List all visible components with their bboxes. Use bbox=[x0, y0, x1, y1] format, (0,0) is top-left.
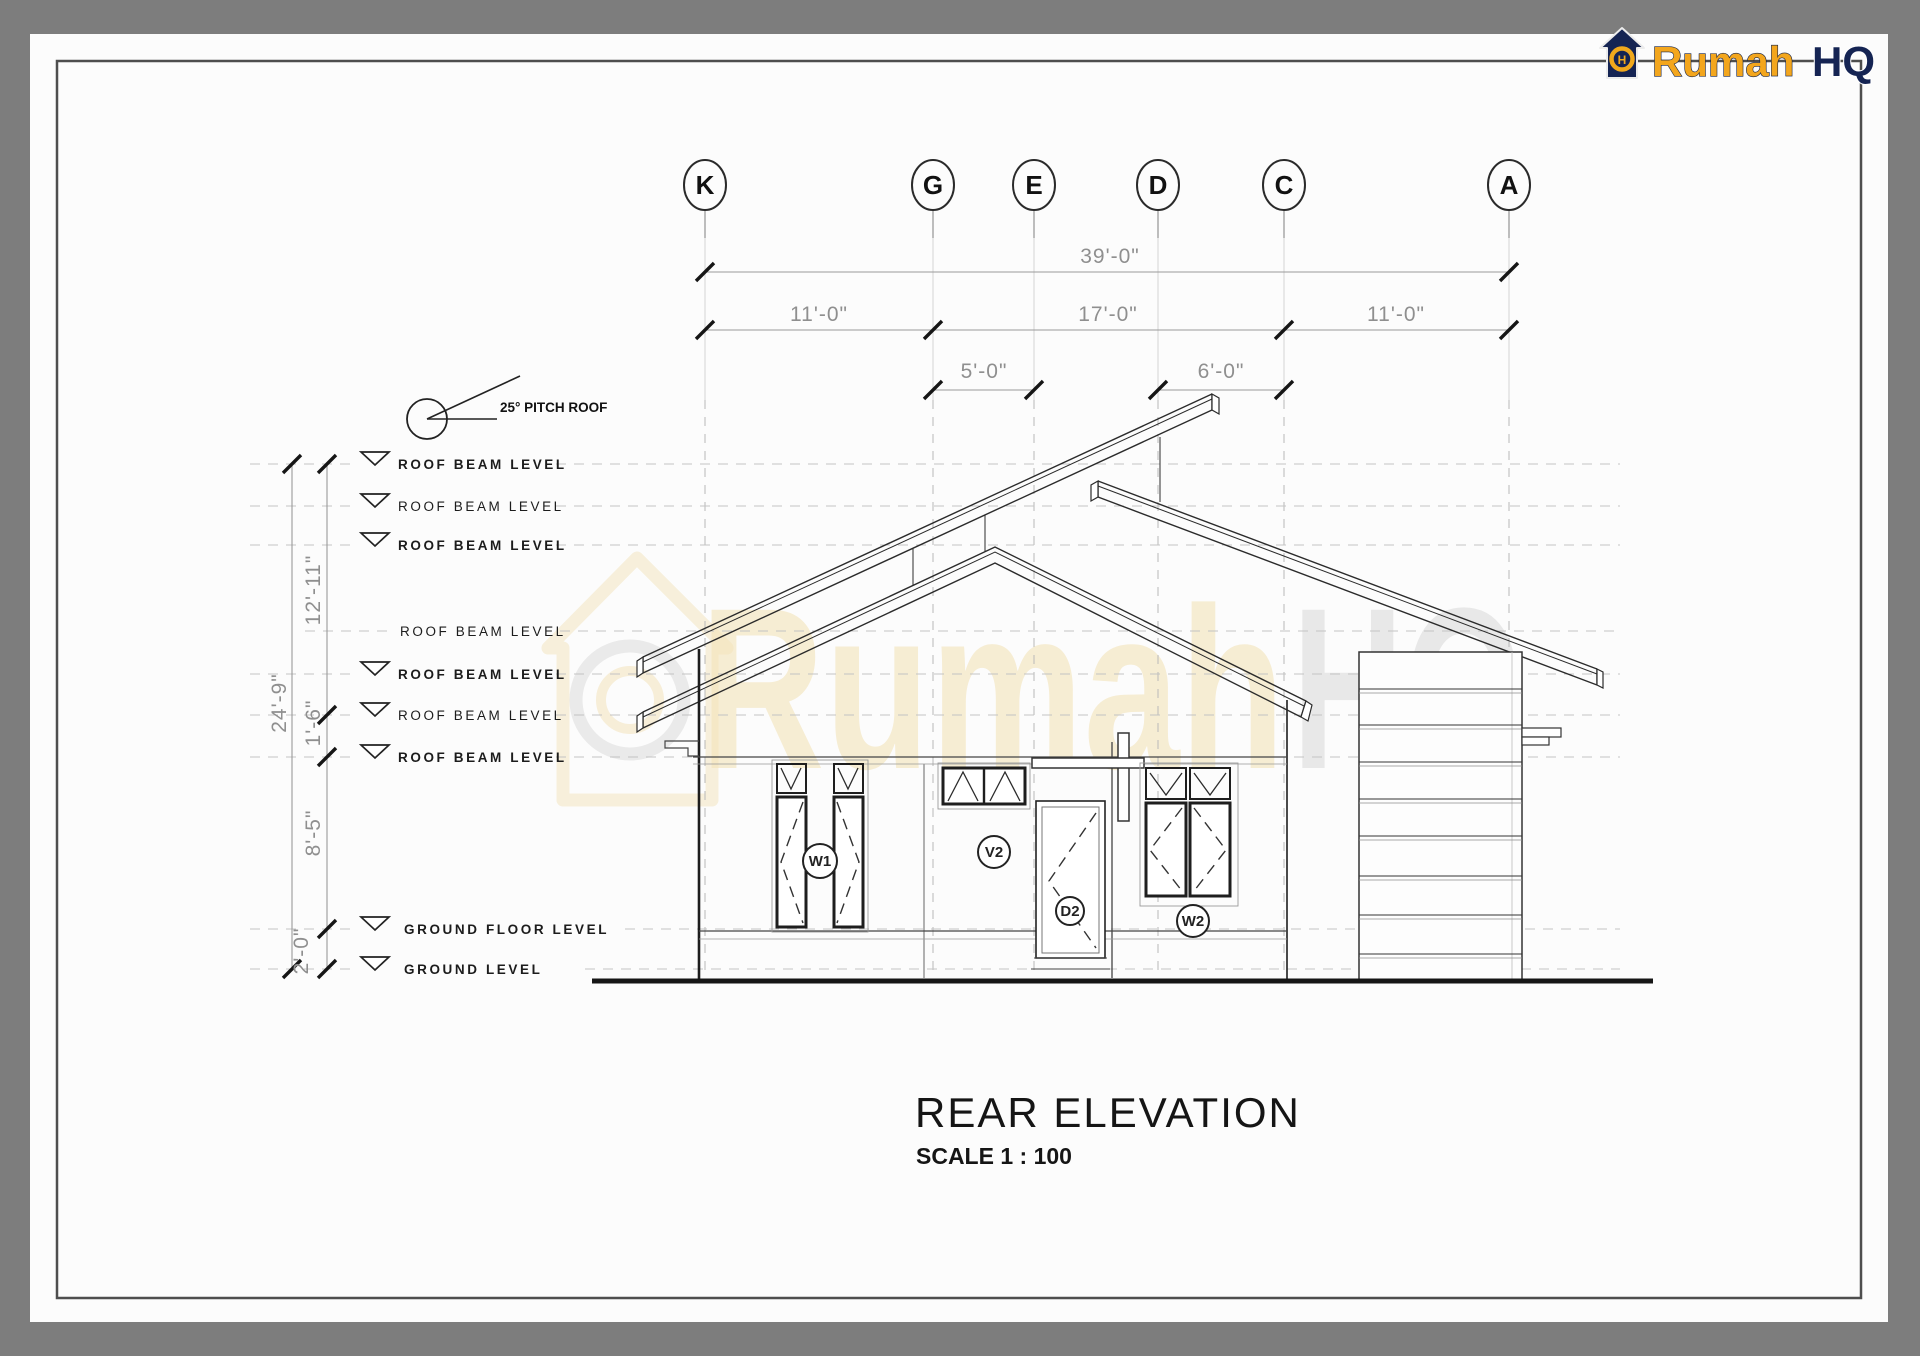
level-label-rbl-7: ROOF BEAM LEVEL bbox=[398, 750, 567, 765]
drawing-sheet: Rumah HQ bbox=[0, 0, 1920, 1356]
grid-bubble-k: K bbox=[696, 170, 715, 200]
dim-seg-2-0: 2'-0" bbox=[290, 928, 313, 975]
gutter-bracket bbox=[1522, 728, 1561, 737]
dim-overall-height: 24'-9" bbox=[268, 673, 291, 733]
dim-bay-mid: 17'-0" bbox=[1078, 303, 1138, 326]
dim-seg-1-6: 1'-6" bbox=[302, 700, 325, 747]
tag-w1: W1 bbox=[809, 853, 832, 870]
dim-bay-right: 11'-0" bbox=[1367, 303, 1425, 326]
dim-bay-left: 11'-0" bbox=[790, 303, 848, 326]
porch-post bbox=[1118, 733, 1129, 821]
drawing-title: REAR ELEVATION bbox=[915, 1089, 1301, 1136]
grid-bubble-e: E bbox=[1025, 170, 1042, 200]
pitch-note-text: 25° PITCH ROOF bbox=[500, 400, 607, 415]
grid-bubble-c: C bbox=[1275, 170, 1294, 200]
tag-w2: W2 bbox=[1182, 913, 1205, 930]
level-label-rbl-1: ROOF BEAM LEVEL bbox=[398, 457, 567, 472]
tag-v2: V2 bbox=[985, 844, 1003, 861]
porch-beam bbox=[1032, 758, 1144, 768]
grid-bubble-g: G bbox=[923, 170, 943, 200]
door-d2: D2 bbox=[1031, 801, 1110, 969]
rear-elevation-drawing: Rumah HQ bbox=[0, 0, 1920, 1356]
level-label-rbl-5: ROOF BEAM LEVEL bbox=[398, 667, 567, 682]
dim-sub-left: 5'-0" bbox=[961, 360, 1008, 383]
logo-icon-letter: H bbox=[1618, 53, 1627, 67]
dim-seg-8-5: 8'-5" bbox=[302, 810, 325, 857]
level-label-rbl-4: ROOF BEAM LEVEL bbox=[400, 624, 566, 639]
dim-seg-12-11: 12'-11" bbox=[302, 555, 325, 626]
drawing-scale: SCALE 1 : 100 bbox=[916, 1143, 1072, 1169]
dim-overall-width: 39'-0" bbox=[1080, 245, 1140, 268]
logo-word-rumah: Rumah bbox=[1652, 38, 1794, 85]
level-label-ground: GROUND LEVEL bbox=[404, 962, 542, 977]
level-label-rbl-3: ROOF BEAM LEVEL bbox=[398, 538, 567, 553]
dim-sub-right: 6'-0" bbox=[1198, 360, 1245, 383]
level-label-ground-floor: GROUND FLOOR LEVEL bbox=[404, 922, 609, 937]
grid-bubble-a: A bbox=[1500, 170, 1519, 200]
logo-word-hq: HQ bbox=[1812, 38, 1875, 85]
grid-bubble-d: D bbox=[1149, 170, 1168, 200]
level-label-rbl-2: ROOF BEAM LEVEL bbox=[398, 499, 564, 514]
level-label-rbl-6: ROOF BEAM LEVEL bbox=[398, 708, 564, 723]
tag-d2: D2 bbox=[1060, 903, 1079, 920]
